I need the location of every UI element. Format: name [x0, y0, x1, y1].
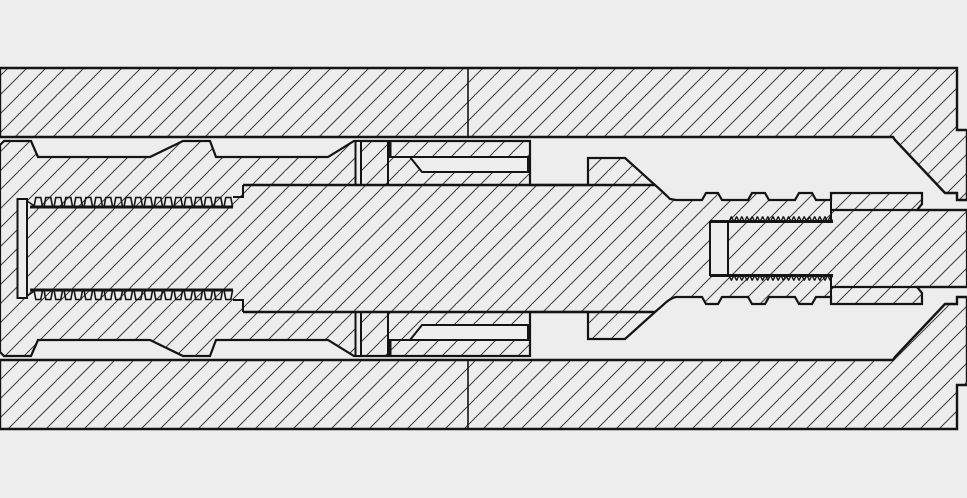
right-pin-nose-gap — [710, 222, 728, 275]
sleeve-clearance-slot-lower — [410, 325, 528, 340]
body-face-gap-lower — [356, 312, 362, 356]
left-pin-nose-gap — [18, 199, 28, 298]
body-face-gap-upper — [356, 141, 362, 185]
technical-drawing-canvas — [0, 0, 967, 498]
technical-drawing-page — [0, 0, 967, 498]
sleeve-clearance-slot-upper — [410, 157, 528, 172]
